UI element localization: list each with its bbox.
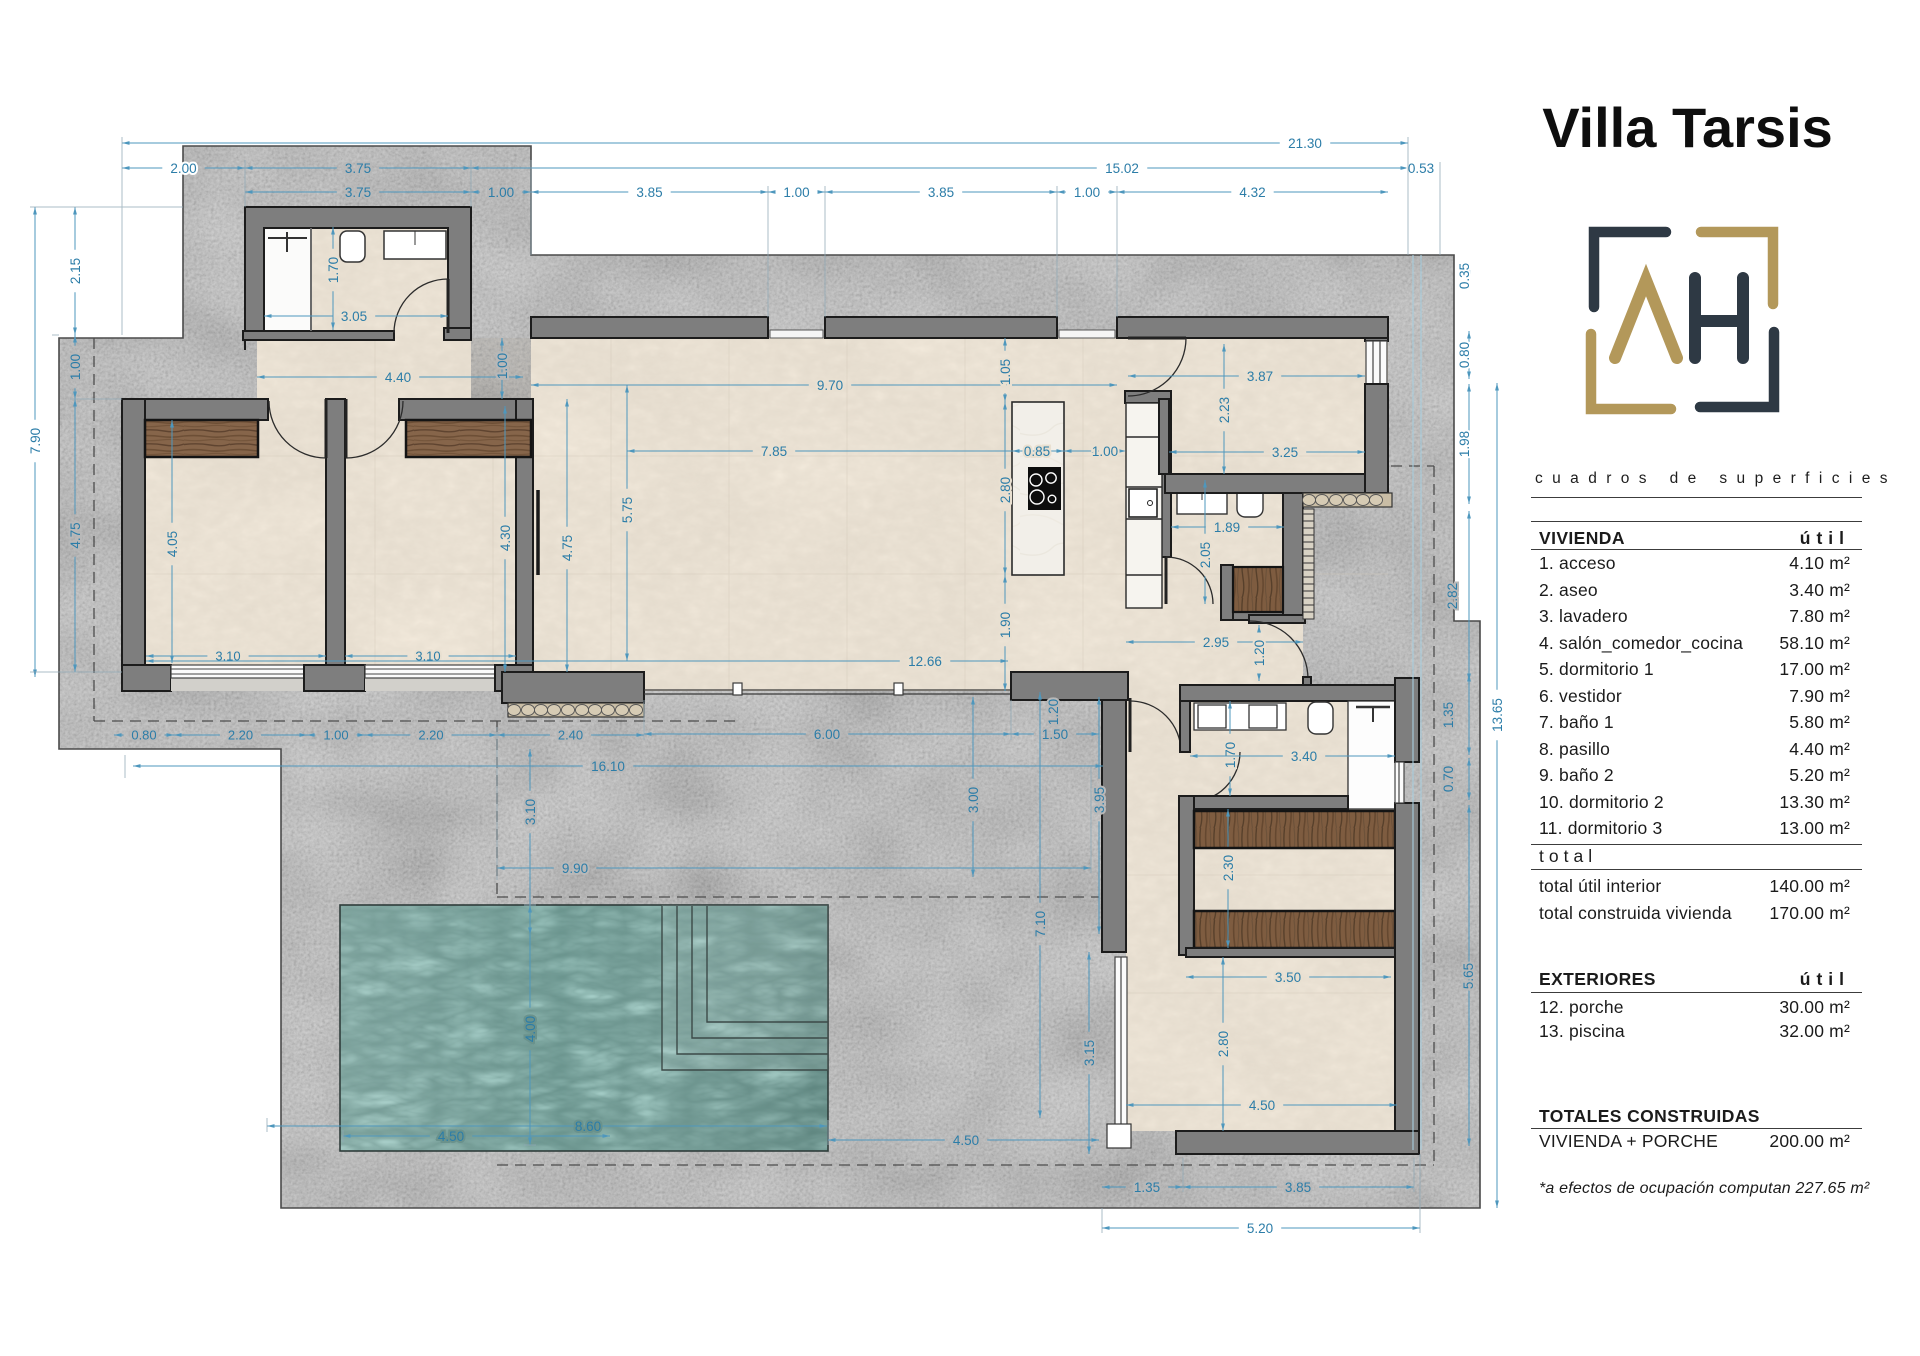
svg-text:1.50: 1.50 bbox=[1042, 727, 1068, 742]
svg-text:9.70: 9.70 bbox=[817, 378, 843, 393]
svg-text:3.00: 3.00 bbox=[966, 787, 981, 813]
svg-text:4.40: 4.40 bbox=[385, 370, 411, 385]
svg-text:1.35: 1.35 bbox=[1134, 1180, 1160, 1195]
svg-text:7.90: 7.90 bbox=[28, 428, 43, 454]
svg-text:1.70: 1.70 bbox=[1223, 742, 1238, 768]
svg-text:3.25: 3.25 bbox=[1272, 445, 1298, 460]
svg-text:7.85: 7.85 bbox=[761, 444, 787, 459]
svg-text:2.05: 2.05 bbox=[1198, 542, 1213, 568]
svg-text:0.53: 0.53 bbox=[1408, 161, 1434, 176]
svg-text:5.65: 5.65 bbox=[1461, 963, 1476, 989]
svg-text:3.95: 3.95 bbox=[1092, 787, 1107, 813]
svg-text:7.10: 7.10 bbox=[1033, 911, 1048, 937]
svg-text:1.98: 1.98 bbox=[1457, 431, 1472, 457]
svg-text:3.75: 3.75 bbox=[345, 161, 371, 176]
svg-text:4.75: 4.75 bbox=[68, 522, 83, 548]
svg-text:5.20: 5.20 bbox=[1247, 1221, 1273, 1236]
svg-text:4.50: 4.50 bbox=[953, 1133, 979, 1148]
svg-text:4.75: 4.75 bbox=[560, 535, 575, 561]
svg-text:3.87: 3.87 bbox=[1247, 369, 1273, 384]
svg-text:1.00: 1.00 bbox=[1074, 185, 1100, 200]
svg-text:4.50: 4.50 bbox=[1249, 1098, 1275, 1113]
svg-text:4.50: 4.50 bbox=[438, 1129, 464, 1144]
svg-text:2.30: 2.30 bbox=[1221, 855, 1236, 881]
svg-text:12.66: 12.66 bbox=[908, 654, 942, 669]
svg-text:5.75: 5.75 bbox=[620, 497, 635, 523]
svg-text:16.10: 16.10 bbox=[591, 759, 625, 774]
svg-text:3.10: 3.10 bbox=[523, 799, 538, 825]
svg-text:1.05: 1.05 bbox=[998, 359, 1013, 385]
svg-text:3.75: 3.75 bbox=[345, 185, 371, 200]
svg-text:2.15: 2.15 bbox=[68, 258, 83, 284]
svg-text:3.85: 3.85 bbox=[928, 185, 954, 200]
svg-text:3.85: 3.85 bbox=[1285, 1180, 1311, 1195]
svg-text:2.80: 2.80 bbox=[998, 477, 1013, 503]
svg-text:21.30: 21.30 bbox=[1288, 136, 1322, 151]
svg-text:1.00: 1.00 bbox=[323, 728, 348, 743]
svg-text:2.00: 2.00 bbox=[170, 161, 196, 176]
svg-text:1.35: 1.35 bbox=[1441, 702, 1456, 728]
svg-text:2.20: 2.20 bbox=[418, 728, 443, 743]
svg-text:9.90: 9.90 bbox=[562, 861, 588, 876]
svg-text:1.00: 1.00 bbox=[495, 353, 510, 379]
svg-text:1.89: 1.89 bbox=[1214, 520, 1240, 535]
svg-text:0.80: 0.80 bbox=[1457, 342, 1472, 368]
svg-text:2.80: 2.80 bbox=[1216, 1031, 1231, 1057]
svg-text:13.65: 13.65 bbox=[1490, 698, 1505, 732]
svg-text:2.40: 2.40 bbox=[558, 728, 583, 743]
svg-text:8.60: 8.60 bbox=[575, 1119, 601, 1134]
svg-text:3.85: 3.85 bbox=[636, 185, 662, 200]
svg-text:0.80: 0.80 bbox=[131, 728, 156, 743]
svg-text:1.00: 1.00 bbox=[1092, 444, 1118, 459]
svg-text:3.05: 3.05 bbox=[341, 309, 367, 324]
svg-text:4.32: 4.32 bbox=[1239, 185, 1265, 200]
svg-text:3.15: 3.15 bbox=[1082, 1040, 1097, 1066]
svg-text:1.70: 1.70 bbox=[326, 257, 341, 283]
svg-text:1.00: 1.00 bbox=[783, 185, 809, 200]
svg-text:6.00: 6.00 bbox=[814, 727, 840, 742]
svg-text:1.20: 1.20 bbox=[1252, 640, 1267, 666]
svg-text:3.40: 3.40 bbox=[1291, 749, 1317, 764]
svg-text:4.05: 4.05 bbox=[165, 531, 180, 557]
svg-text:2.20: 2.20 bbox=[228, 728, 253, 743]
svg-text:2.95: 2.95 bbox=[1203, 635, 1229, 650]
svg-text:2.82: 2.82 bbox=[1445, 583, 1460, 609]
svg-text:2.23: 2.23 bbox=[1217, 397, 1232, 423]
svg-text:15.02: 15.02 bbox=[1105, 161, 1139, 176]
svg-text:4.00: 4.00 bbox=[523, 1016, 538, 1042]
svg-text:1.90: 1.90 bbox=[998, 612, 1013, 638]
svg-text:0.70: 0.70 bbox=[1441, 766, 1456, 792]
svg-text:3.50: 3.50 bbox=[1275, 970, 1301, 985]
svg-text:1.00: 1.00 bbox=[68, 354, 83, 380]
svg-text:4.30: 4.30 bbox=[498, 525, 513, 551]
svg-text:0.35: 0.35 bbox=[1457, 263, 1472, 289]
svg-text:0.85: 0.85 bbox=[1024, 444, 1050, 459]
svg-text:1.20: 1.20 bbox=[1046, 699, 1061, 725]
svg-text:1.00: 1.00 bbox=[488, 185, 514, 200]
